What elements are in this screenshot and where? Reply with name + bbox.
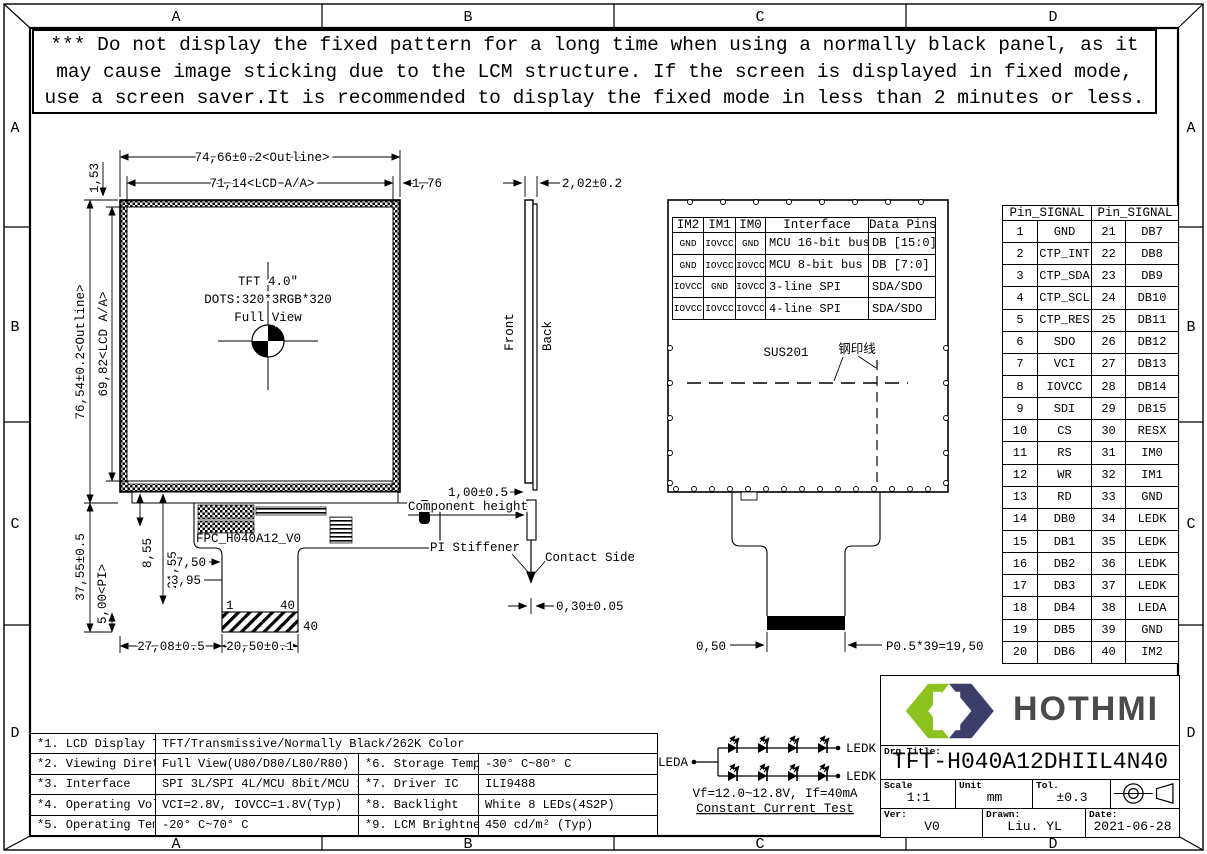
pin-signal: DB8	[1126, 243, 1179, 265]
pin-number: 36	[1092, 553, 1126, 575]
dim-gap-right: 1,76	[412, 177, 442, 191]
pin-signal: LEDK	[1126, 508, 1179, 530]
pin-last-label: 40	[280, 599, 295, 613]
version-cell: Ver: V0	[880, 808, 984, 838]
dim-fpc-height: 37,55±0.5	[74, 533, 88, 601]
dim-pi: 5,00<PI>	[96, 564, 110, 624]
drawn-cell: Drawn: Liu. YL	[982, 808, 1087, 838]
pin-number: 10	[1003, 420, 1038, 442]
zone-letter: A	[1186, 120, 1195, 137]
warning-line: may cause image sticking due to the LCM …	[34, 59, 1155, 86]
pin-number: 21	[1092, 221, 1126, 243]
im1-value: IOVCC	[704, 298, 736, 320]
pin-signal: DB6	[1038, 641, 1092, 663]
date-value: 2021-06-28	[1086, 820, 1179, 834]
led-anode-label: LEDA	[658, 756, 689, 770]
im1-value: IOVCC	[704, 254, 736, 276]
pin-table-row: 16 DB2 36 LEDK	[1003, 553, 1179, 575]
pin-signal-table: Pin_SIGNAL Pin_SIGNAL 1 GND 21 DB7 2 CTP…	[1002, 205, 1178, 664]
date-cell: Date: 2021-06-28	[1085, 808, 1180, 838]
pin-number: 14	[1003, 508, 1038, 530]
spec-label: *1. LCD Display Type	[31, 734, 156, 754]
pin-table-row: 12 WR 32 IM1	[1003, 464, 1179, 486]
spec-label: *6. Storage Temp	[359, 754, 479, 774]
spec-value: ILI9488	[479, 774, 658, 794]
pin-signal: RESX	[1126, 420, 1179, 442]
warning-line: use a screen saver.It is recommended to …	[34, 85, 1155, 112]
spec-value: VCI=2.8V, IOVCC=1.8V(Typ)	[156, 795, 359, 815]
pin-table-row: 6 SDO 26 DB12	[1003, 331, 1179, 353]
zone-letter: C	[755, 9, 764, 26]
pin-number: 11	[1003, 442, 1038, 464]
stamp-label: 钢印线	[838, 342, 876, 357]
pin-table-row: 14 DB0 34 LEDK	[1003, 508, 1179, 530]
pin-number: 33	[1092, 486, 1126, 508]
pin-signal: DB11	[1126, 309, 1179, 331]
pin-number: 22	[1092, 243, 1126, 265]
spec-row: *5. Operating Temp -20° C~70° C *9. LCM …	[31, 815, 658, 835]
pin-number: 15	[1003, 530, 1038, 552]
title-block-logo-cell: HOTHMI	[880, 675, 1180, 747]
scale-value: 1:1	[881, 791, 956, 805]
pin-signal: IM2	[1126, 641, 1179, 663]
warning-note: *** Do not display the fixed pattern for…	[32, 29, 1157, 114]
im0-value: IOVCC	[736, 298, 766, 320]
pin-signal: IM1	[1126, 464, 1179, 486]
front-side-label: Front	[503, 313, 517, 351]
version-value: V0	[881, 820, 983, 834]
dim-tail-w: 20,50±0.1	[226, 640, 294, 654]
spec-row: *1. LCD Display Type TFT/Transmissive/No…	[31, 734, 658, 754]
interface-value: 4-line SPI	[766, 298, 869, 320]
dim-pitch-total: P0.5*39=19,50	[886, 640, 984, 654]
pin-signal: VCI	[1038, 353, 1092, 375]
pin-signal: GND	[1126, 619, 1179, 641]
pin-signal: DB15	[1126, 398, 1179, 420]
zone-letter: D	[1048, 9, 1057, 26]
fpc-part-number: FPC_H040A12_V0	[196, 532, 301, 546]
pin-table-row: 19 DB5 39 GND	[1003, 619, 1179, 641]
dim-pitch-unit: 0,50	[696, 640, 726, 654]
pin-number: 35	[1092, 530, 1126, 552]
im-col-header: IM1	[704, 218, 736, 233]
pin-number: 30	[1092, 420, 1126, 442]
im-col-header: IM0	[736, 218, 766, 233]
pin-signal: GND	[1038, 221, 1092, 243]
pin-signal-header: Pin_SIGNAL	[1092, 206, 1179, 221]
dim-tail-x: 27,08±0.5	[137, 640, 205, 654]
tol-cell: Tol. ±0.3	[1032, 779, 1112, 810]
zone-letter: D	[10, 725, 19, 742]
im-col-header: Data Pins	[869, 218, 936, 233]
spec-label: *5. Operating Temp	[31, 815, 156, 835]
zone-letter: C	[10, 516, 19, 533]
pin-signal: DB4	[1038, 597, 1092, 619]
im1-value: GND	[704, 276, 736, 298]
pin-number: 31	[1092, 442, 1126, 464]
projection-cell	[1110, 779, 1180, 810]
im2-value: IOVCC	[673, 298, 704, 320]
pin-number: 1	[1003, 221, 1038, 243]
im-interface-table: IM2 IM1 IM0 Interface Data Pins GND IOVC…	[672, 217, 935, 320]
dim-outline-height: 76,54±0.2<Outline>	[74, 284, 88, 419]
led-circuit: LEDA LEDK LEDK Vf=12.0~12.8V, If=40mA Co…	[658, 736, 877, 816]
im0-value: GND	[736, 233, 766, 255]
pin-table-row: 3 CTP_SDA 23 DB9	[1003, 265, 1179, 287]
spec-value: -20° C~70° C	[156, 815, 359, 835]
pin-number: 17	[1003, 575, 1038, 597]
spec-label: *8. Backlight	[359, 795, 479, 815]
pin-signal: IM0	[1126, 442, 1179, 464]
pin-number: 26	[1092, 331, 1126, 353]
pin-signal: LEDK	[1126, 575, 1179, 597]
pin-number: 16	[1003, 553, 1038, 575]
im-table-row: GND IOVCC IOVCC MCU 8-bit bus DB [7:0]	[673, 254, 936, 276]
dim-lcd-height: 69,82<LCD A/A>	[97, 291, 111, 396]
spec-value: SPI 3L/SPI 4L/MCU 8bit/MCU 16bit	[156, 774, 359, 794]
pin-signal: RS	[1038, 442, 1092, 464]
zone-letter: D	[1186, 725, 1195, 742]
pin-table-row: 13 RD 33 GND	[1003, 486, 1179, 508]
side-view: Front Back 2,02±0.2 1,00±0.5 Component h…	[408, 176, 635, 614]
pin-number: 3	[1003, 265, 1038, 287]
led-test-label: Constant Current Test	[696, 802, 854, 816]
dim-395: 3,95	[171, 574, 201, 588]
spec-label: *2. Viewing Diretion	[31, 754, 156, 774]
im0-value: IOVCC	[736, 254, 766, 276]
pin-signal: SDI	[1038, 398, 1092, 420]
pin-signal: DB9	[1126, 265, 1179, 287]
interface-value: MCU 8-bit bus	[766, 254, 869, 276]
spec-table: *1. LCD Display Type TFT/Transmissive/No…	[30, 733, 657, 836]
pin-number: 20	[1003, 641, 1038, 663]
spec-label: *9. LCM Brightness	[359, 815, 479, 835]
pin-number: 5	[1003, 309, 1038, 331]
center-registration-mark	[252, 325, 284, 357]
pin-signal: RD	[1038, 486, 1092, 508]
pin-table-row: 15 DB1 35 LEDK	[1003, 530, 1179, 552]
dim-component-height: 1,00±0.5	[448, 486, 508, 500]
led-cathode-label: LEDK	[846, 770, 877, 784]
zone-letter: B	[10, 319, 19, 336]
pin-table-header-row: Pin_SIGNAL Pin_SIGNAL	[1003, 206, 1179, 221]
pin-signal: DB12	[1126, 331, 1179, 353]
spec-value: White 8 LEDs(4S2P)	[479, 795, 658, 815]
pin-number: 4	[1003, 287, 1038, 309]
data-pins-value: DB [7:0]	[869, 254, 936, 276]
drawn-value: Liu. YL	[983, 820, 1086, 834]
pin-table-row: 2 CTP_INT 22 DB8	[1003, 243, 1179, 265]
tol-value: ±0.3	[1033, 791, 1111, 805]
spec-label: *4. Operating Voltage	[31, 795, 156, 815]
pin-number: 24	[1092, 287, 1126, 309]
pin-signal: DB1	[1038, 530, 1092, 552]
data-pins-value: DB [15:0]	[869, 233, 936, 255]
unit-value: mm	[956, 791, 1033, 805]
front-view: TFT 4.0″ DOTS:320*3RGB*320 Full View	[74, 150, 442, 654]
pin-number: 23	[1092, 265, 1126, 287]
pin-number: 39	[1092, 619, 1126, 641]
pin-number: 38	[1092, 597, 1126, 619]
data-pins-value: SDA/SDO	[869, 298, 936, 320]
dim-750: 7,50	[176, 556, 206, 570]
sus-label: SUS201	[763, 346, 808, 360]
pin-signal: WR	[1038, 464, 1092, 486]
pin-first-label: 1	[226, 599, 234, 613]
pin-number: 34	[1092, 508, 1126, 530]
pin-table-row: 5 CTP_RES 25 DB11	[1003, 309, 1179, 331]
im0-value: IOVCC	[736, 276, 766, 298]
pi-stiffener-label: PI Stiffener	[430, 541, 520, 555]
pin-signal: CTP_SDA	[1038, 265, 1092, 287]
pin-table-row: 1 GND 21 DB7	[1003, 221, 1179, 243]
pin-signal: DB13	[1126, 353, 1179, 375]
pin-number: 27	[1092, 353, 1126, 375]
pin-signal: DB5	[1038, 619, 1092, 641]
spec-value: TFT/Transmissive/Normally Black/262K Col…	[156, 734, 658, 754]
im2-value: GND	[673, 233, 704, 255]
pin-signal: CS	[1038, 420, 1092, 442]
pin-signal: CTP_INT	[1038, 243, 1092, 265]
dim-gap-top: 1,53	[88, 163, 102, 193]
interface-value: MCU 16-bit bus	[766, 233, 869, 255]
back-connector	[767, 616, 845, 630]
scale-cell: Scale 1:1	[880, 779, 957, 810]
pin-number: 12	[1003, 464, 1038, 486]
panel-view-label: Full View	[234, 311, 302, 325]
pin-number: 19	[1003, 619, 1038, 641]
zone-letter: A	[171, 836, 180, 853]
brand-name: HOTHMI	[1013, 690, 1159, 729]
led-spec-label: Vf=12.0~12.8V, If=40mA	[692, 787, 858, 801]
spec-label: *7. Driver IC	[359, 774, 479, 794]
im1-value: IOVCC	[704, 233, 736, 255]
unit-cell: Unit mm	[955, 779, 1034, 810]
pin-number: 37	[1092, 575, 1126, 597]
zone-letter: C	[755, 836, 764, 853]
pin-number: 9	[1003, 398, 1038, 420]
pin-number: 18	[1003, 597, 1038, 619]
pin-number: 40	[1092, 641, 1126, 663]
drawing-sheet: A B C D A B C D A B C D A B C D TFT 4.0″	[0, 0, 1207, 854]
spec-value: 450 cd/m² (Typ)	[479, 815, 658, 835]
back-side-label: Back	[541, 321, 555, 351]
pin-signal: DB14	[1126, 375, 1179, 397]
zone-letter: D	[1048, 836, 1057, 853]
spec-row: *2. Viewing Diretion Full View(U80/D80/L…	[31, 754, 658, 774]
spec-label: *3. Interface	[31, 774, 156, 794]
pin-signal: IOVCC	[1038, 375, 1092, 397]
connector-pin-count: 40	[303, 620, 318, 634]
pin-table-row: 20 DB6 40 IM2	[1003, 641, 1179, 663]
hothmi-logo	[893, 679, 1005, 743]
pin-signal: SDO	[1038, 331, 1092, 353]
pin-number: 29	[1092, 398, 1126, 420]
pin-number: 7	[1003, 353, 1038, 375]
pin-number: 6	[1003, 331, 1038, 353]
fpc-component	[198, 505, 254, 519]
im-table-row: IOVCC GND IOVCC 3-line SPI SDA/SDO	[673, 276, 936, 298]
side-component	[527, 500, 536, 540]
pin-signal: CTP_RES	[1038, 309, 1092, 331]
pin-number: 2	[1003, 243, 1038, 265]
im-table-row: GND IOVCC GND MCU 16-bit bus DB [15:0]	[673, 233, 936, 255]
zone-letter: C	[1186, 516, 1195, 533]
third-angle-projection-icon	[1111, 780, 1177, 807]
im2-value: IOVCC	[673, 276, 704, 298]
zone-letter: B	[463, 9, 472, 26]
drg-title-cell: Drg Title: TFT-H040A12DHIIL4N40	[880, 745, 1180, 781]
fpc: FPC_H040A12_V0 1 40 40	[194, 500, 440, 634]
dim-outline-width: 74,66±0.2<Outline>	[194, 151, 329, 165]
pin-number: 25	[1092, 309, 1126, 331]
pin-table-row: 4 CTP_SCL 24 DB10	[1003, 287, 1179, 309]
pin-signal: DB3	[1038, 575, 1092, 597]
spec-value: -30° C~80° C	[479, 754, 658, 774]
fpc-component	[256, 507, 326, 515]
pin-number: 28	[1092, 375, 1126, 397]
pin-signal: DB2	[1038, 553, 1092, 575]
zone-letter: A	[171, 9, 180, 26]
interface-value: 3-line SPI	[766, 276, 869, 298]
component-height-label: Component height	[408, 500, 528, 514]
im-col-header: Interface	[766, 218, 869, 233]
pin-signal-header: Pin_SIGNAL	[1003, 206, 1092, 221]
spec-row: *3. Interface SPI 3L/SPI 4L/MCU 8bit/MCU…	[31, 774, 658, 794]
pin-table-row: 18 DB4 38 LEDA	[1003, 597, 1179, 619]
pin-signal: DB10	[1126, 287, 1179, 309]
pin-signal: LEDA	[1126, 597, 1179, 619]
pin-signal: DB0	[1038, 508, 1092, 530]
panel-size-label: TFT 4.0″	[238, 275, 298, 289]
data-pins-value: SDA/SDO	[869, 276, 936, 298]
im-table-header-row: IM2 IM1 IM0 Interface Data Pins	[673, 218, 936, 233]
zone-letter: A	[10, 120, 19, 137]
pin-number: 13	[1003, 486, 1038, 508]
im-col-header: IM2	[673, 218, 704, 233]
pin-table-row: 10 CS 30 RESX	[1003, 420, 1179, 442]
zone-letter: B	[463, 836, 472, 853]
drg-title: TFT-H040A12DHIIL4N40	[881, 749, 1179, 775]
im-table-row: IOVCC IOVCC IOVCC 4-line SPI SDA/SDO	[673, 298, 936, 320]
fpc-connector	[222, 612, 298, 632]
spec-value: Full View(U80/D80/L80/R80)	[156, 754, 359, 774]
pin-signal: CTP_SCL	[1038, 287, 1092, 309]
panel-dots-label: DOTS:320*3RGB*320	[204, 293, 332, 307]
pin-signal: GND	[1126, 486, 1179, 508]
pin-number: 8	[1003, 375, 1038, 397]
pin-signal: DB7	[1126, 221, 1179, 243]
pin-table-row: 8 IOVCC 28 DB14	[1003, 375, 1179, 397]
pin-table-row: 9 SDI 29 DB15	[1003, 398, 1179, 420]
led-cathode-label: LEDK	[846, 742, 877, 756]
pin-signal: LEDK	[1126, 553, 1179, 575]
warning-line: *** Do not display the fixed pattern for…	[34, 32, 1155, 59]
zone-letter: B	[1186, 319, 1195, 336]
pin-signal: LEDK	[1126, 530, 1179, 552]
im2-value: GND	[673, 254, 704, 276]
contact-side-label: Contact Side	[545, 551, 635, 565]
dim-thickness: 2,02±0.2	[562, 177, 622, 191]
fpc-component	[330, 517, 352, 543]
pin-number: 32	[1092, 464, 1126, 486]
dim-855: 8,55	[141, 538, 155, 568]
pin-table-row: 11 RS 31 IM0	[1003, 442, 1179, 464]
dim-fpc-thickness: 0,30±0.05	[556, 600, 624, 614]
spec-row: *4. Operating Voltage VCI=2.8V, IOVCC=1.…	[31, 795, 658, 815]
dim-lcd-width: 71,14<LCD A/A>	[209, 177, 314, 191]
pin-table-row: 7 VCI 27 DB13	[1003, 353, 1179, 375]
pin-table-row: 17 DB3 37 LEDK	[1003, 575, 1179, 597]
